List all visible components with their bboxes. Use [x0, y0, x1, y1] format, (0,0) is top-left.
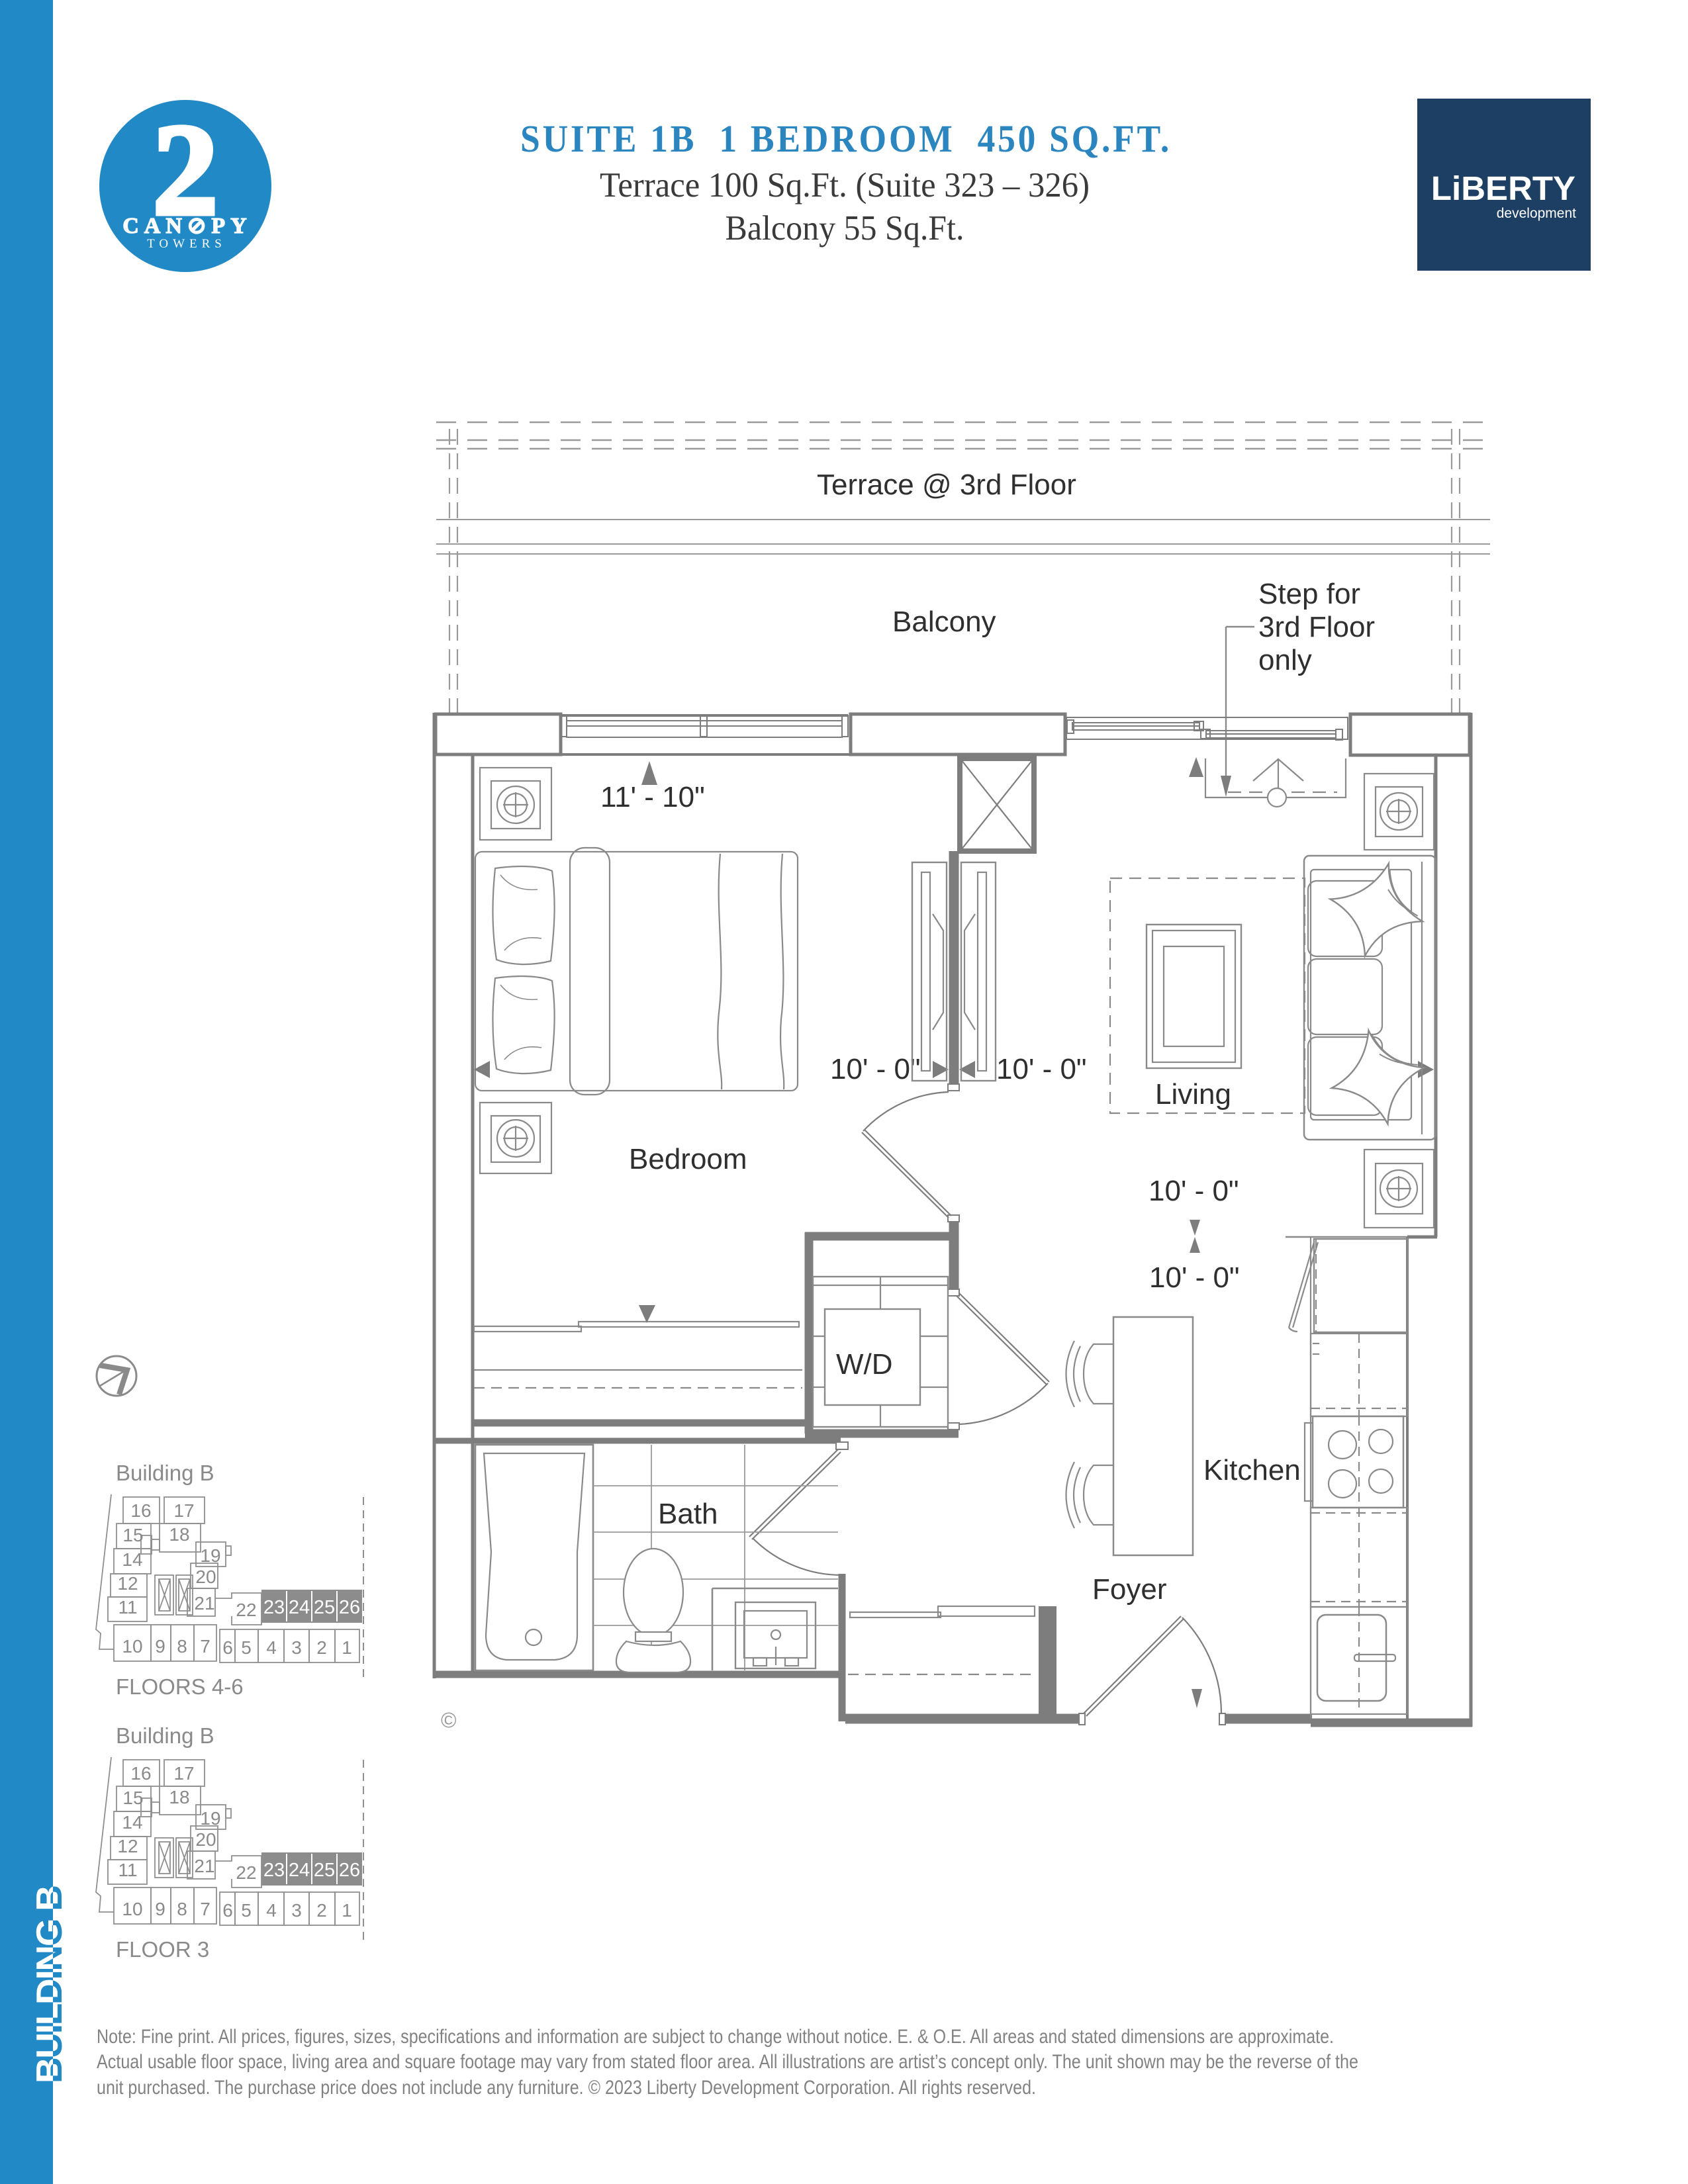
svg-text:Building B: Building B — [116, 1461, 214, 1485]
svg-text:Foyer: Foyer — [1092, 1573, 1166, 1606]
svg-text:Bedroom: Bedroom — [629, 1143, 747, 1175]
svg-text:10' - 0": 10' - 0" — [1149, 1175, 1239, 1207]
svg-text:Note: Fine print. All prices,: Note: Fine print. All prices, figures, s… — [97, 2026, 1334, 2048]
svg-text:Balcony: Balcony — [892, 606, 996, 638]
svg-text:LiBERTY: LiBERTY — [1431, 169, 1575, 207]
svg-text:©: © — [441, 1708, 457, 1732]
svg-text:development: development — [1497, 206, 1576, 221]
svg-text:TOWERS: TOWERS — [147, 237, 226, 251]
svg-text:FLOOR 3: FLOOR 3 — [116, 1937, 209, 1962]
svg-text:Living: Living — [1155, 1078, 1231, 1111]
svg-text:Bath: Bath — [658, 1498, 718, 1530]
svg-text:10' - 0": 10' - 0" — [1149, 1261, 1240, 1294]
svg-text:W/D: W/D — [836, 1348, 893, 1381]
svg-text:SUITE 1B 1 BEDROOM 450 SQ.FT: SUITE 1B 1 BEDROOM 450 SQ.FT. — [520, 117, 1172, 160]
svg-text:Terrace 100 Sq.Ft. (Suite 323: Terrace 100 Sq.Ft. (Suite 323 – 326) — [600, 166, 1090, 205]
svg-text:Actual usable floor space, liv: Actual usable floor space, living area a… — [97, 2051, 1358, 2073]
svg-text:11' - 10": 11' - 10" — [600, 781, 705, 813]
svg-text:Kitchen: Kitchen — [1203, 1454, 1301, 1486]
svg-text:Building B: Building B — [116, 1723, 214, 1748]
svg-text:Balcony 55 Sq.Ft.: Balcony 55 Sq.Ft. — [726, 209, 964, 248]
svg-text:unit purchased. The purchase p: unit purchased. The purchase price does … — [97, 2077, 1036, 2099]
svg-text:Step for: Step for — [1258, 578, 1360, 610]
svg-text:3rd Floor: 3rd Floor — [1258, 611, 1375, 643]
svg-text:Terrace @ 3rd Floor: Terrace @ 3rd Floor — [817, 469, 1076, 501]
svg-text:10' - 0": 10' - 0" — [996, 1053, 1087, 1085]
svg-text:FLOORS 4-6: FLOORS 4-6 — [116, 1674, 244, 1699]
svg-text:10' - 0": 10' - 0" — [830, 1053, 921, 1085]
svg-text:CAN⊘PY: CAN⊘PY — [122, 214, 252, 238]
svg-text:only: only — [1258, 644, 1312, 676]
